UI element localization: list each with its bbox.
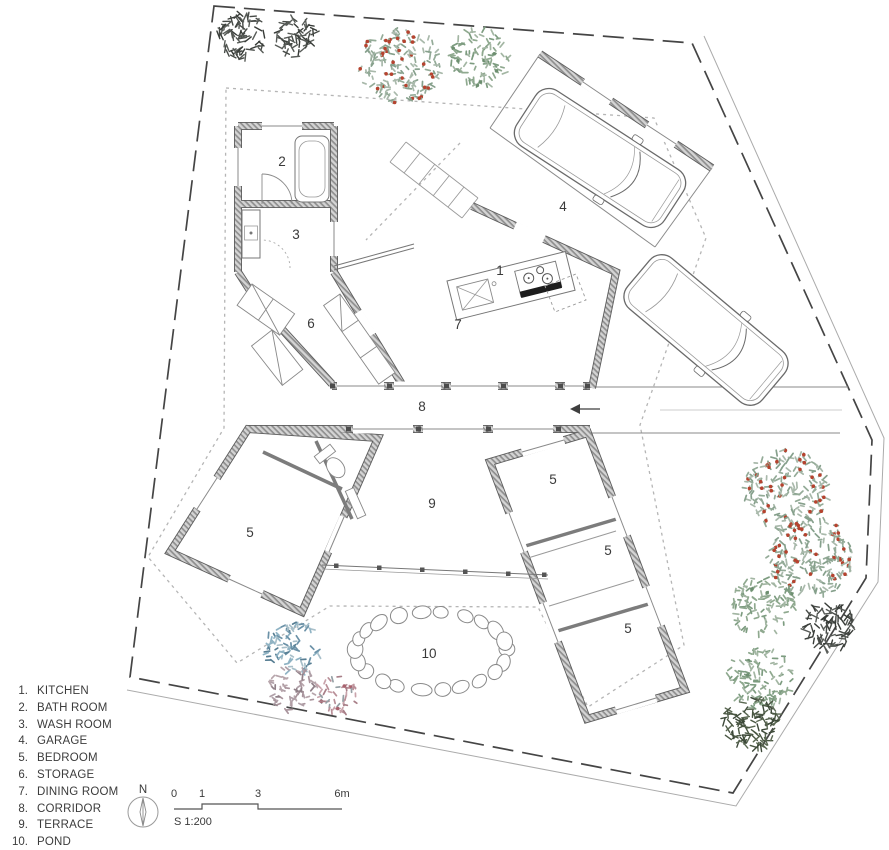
wash-door-arc [262, 240, 290, 268]
tree-charcoal [217, 11, 265, 61]
legend-item-number: 9. [6, 817, 28, 834]
room-number-label: 2 [278, 154, 286, 169]
tree-redgreen [358, 28, 442, 104]
legend-item-label: DINING ROOM [37, 784, 118, 801]
legend-item-label: GARAGE [37, 733, 87, 750]
entrance-arrow-icon [570, 404, 600, 414]
driveway-lines [592, 387, 848, 433]
scale-tick-label: 1 [199, 788, 205, 800]
scale-bar-line [174, 804, 342, 809]
glass-wall [334, 244, 414, 270]
bathtub [295, 136, 329, 202]
scale-tick-label: 3 [255, 788, 261, 800]
legend-item: 10.POND [6, 834, 118, 850]
room-number-label: 6 [307, 316, 315, 331]
room-number-label: 4 [559, 199, 567, 214]
legend-item-label: TERRACE [37, 817, 93, 834]
legend-item-number: 2. [6, 700, 28, 717]
legend-item-number: 3. [6, 717, 28, 734]
legend-item: 3.WASH ROOM [6, 717, 118, 734]
pond-stone [412, 605, 432, 620]
legend-item-label: STORAGE [37, 767, 94, 784]
legend-item-number: 6. [6, 767, 28, 784]
scale-tick-label: 0 [171, 788, 177, 800]
pond-stone [450, 678, 471, 696]
pond-stone [388, 605, 410, 627]
tree-mauve [269, 667, 317, 713]
legend-item-label: WASH ROOM [37, 717, 112, 734]
scale-note: S 1:200 [174, 816, 212, 828]
tree-charcoal [274, 15, 319, 57]
bath-door-arc [262, 174, 292, 204]
room-number-label: 10 [421, 646, 436, 661]
tree-rose [317, 676, 357, 714]
legend-item-number: 7. [6, 784, 28, 801]
legend-item-number: 8. [6, 801, 28, 818]
pond-stone [455, 607, 475, 625]
pond-stone [433, 606, 449, 619]
room-number-label: 7 [454, 317, 462, 332]
room-number-label: 3 [292, 227, 300, 242]
legend-item: 6.STORAGE [6, 767, 118, 784]
legend-item: 9.TERRACE [6, 817, 118, 834]
room-number-label: 9 [428, 496, 436, 511]
tree-redgreen [742, 449, 830, 531]
legend-item: 2.BATH ROOM [6, 700, 118, 717]
legend-item-label: POND [37, 834, 71, 850]
scale-bar: S 1:200 0136m [171, 788, 350, 828]
pond-stone [434, 682, 452, 698]
legend-item-number: 1. [6, 683, 28, 700]
mullion-posts [330, 384, 590, 432]
legend-item: 7.DINING ROOM [6, 784, 118, 801]
legend-item-label: KITCHEN [37, 683, 89, 700]
pond-stone [470, 672, 490, 691]
terrace-deck-edge [322, 564, 548, 580]
entry-steps [390, 142, 478, 218]
legend-item-label: BATH ROOM [37, 700, 108, 717]
floor-plan-page: 12345555678910 N S 1:200 0136m 1.KITCHEN… [0, 0, 889, 850]
room-number-label: 1 [496, 263, 504, 278]
room-number-label: 5 [549, 472, 557, 487]
legend-item-label: BEDROOM [37, 750, 98, 767]
kitchen-island [447, 251, 575, 319]
legend-item: 8.CORRIDOR [6, 801, 118, 818]
room-number-label: 5 [246, 525, 254, 540]
legend-item-label: CORRIDOR [37, 801, 101, 818]
garage-car-icon [505, 77, 695, 238]
legend: 1.KITCHEN2.BATH ROOM3.WASH ROOM4.GARAGE5… [6, 683, 118, 850]
tree-sage [448, 27, 510, 87]
legend-item: 4.GARAGE [6, 733, 118, 750]
room-number-label: 8 [418, 399, 426, 414]
scale-tick-label: 6m [334, 788, 349, 800]
pond-stone [411, 682, 433, 697]
laundry-counter [242, 210, 260, 258]
floor-plan-svg: 12345555678910 N S 1:200 0136m [0, 0, 889, 850]
legend-item: 1.KITCHEN [6, 683, 118, 700]
tree-blue [263, 622, 320, 675]
north-label: N [139, 784, 147, 796]
parked-car-icon [614, 244, 799, 417]
room-number-label: 5 [604, 543, 612, 558]
tree-sage [732, 577, 796, 637]
legend-item-number: 10. [6, 834, 28, 850]
north-arrow: N [128, 784, 158, 827]
legend-item: 5.BEDROOM [6, 750, 118, 767]
room-number-label: 5 [624, 621, 632, 636]
legend-item-number: 5. [6, 750, 28, 767]
legend-item-number: 4. [6, 733, 28, 750]
